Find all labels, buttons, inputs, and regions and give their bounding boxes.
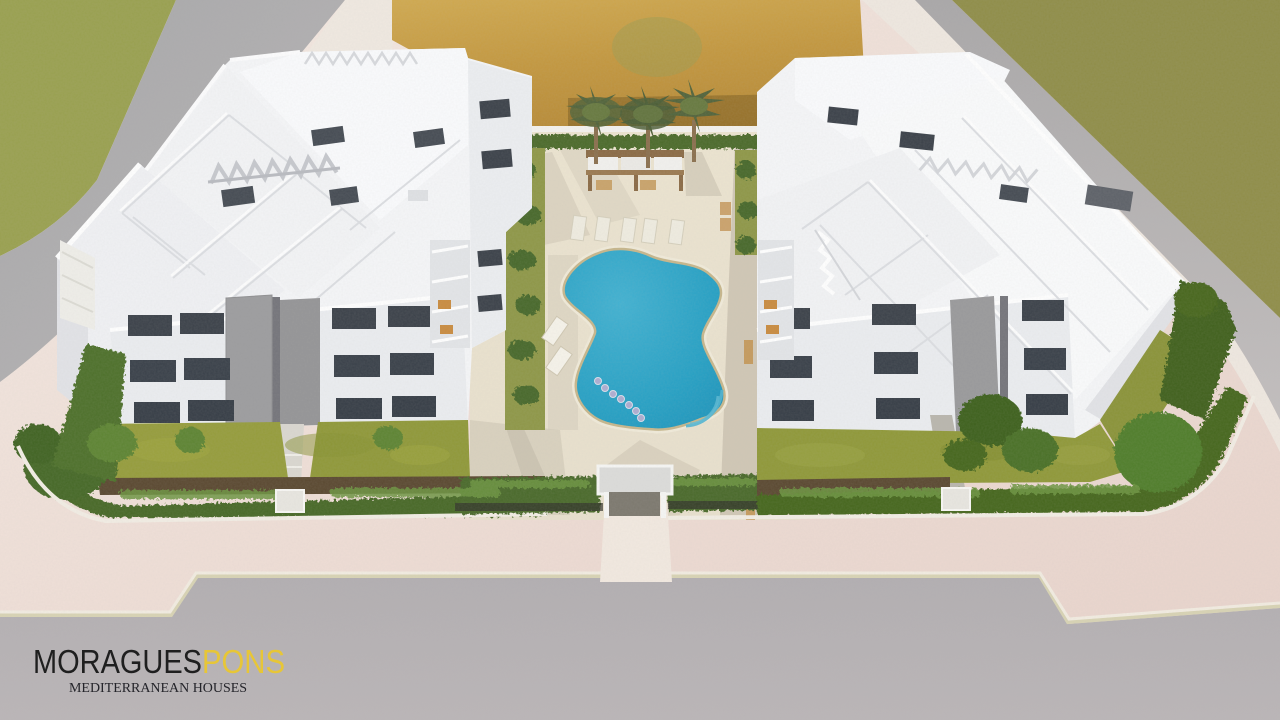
svg-text:MEDITERRANEAN HOUSES: MEDITERRANEAN HOUSES xyxy=(69,680,247,695)
svg-text:MORAGUES: MORAGUES xyxy=(33,643,202,680)
svg-text:PONS: PONS xyxy=(202,643,285,680)
